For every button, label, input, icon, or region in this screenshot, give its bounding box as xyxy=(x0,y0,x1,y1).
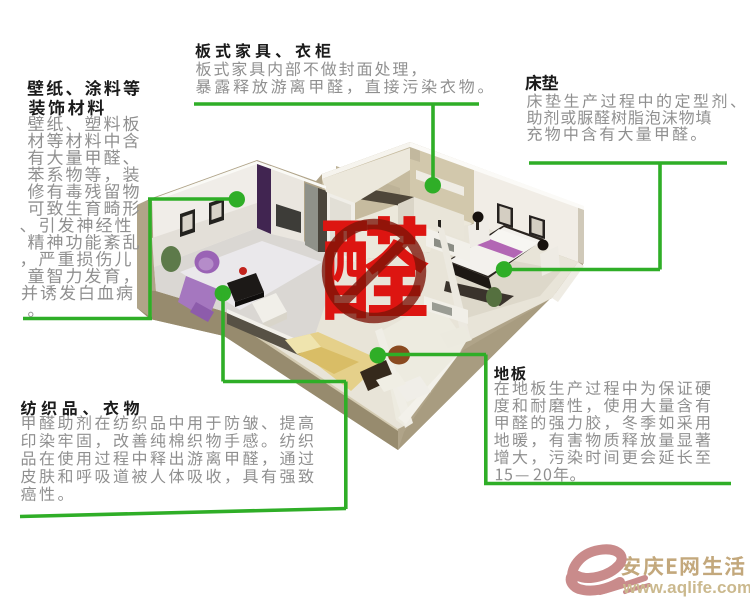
svg-text:www.aqlife.com: www.aqlife.com xyxy=(622,578,750,597)
